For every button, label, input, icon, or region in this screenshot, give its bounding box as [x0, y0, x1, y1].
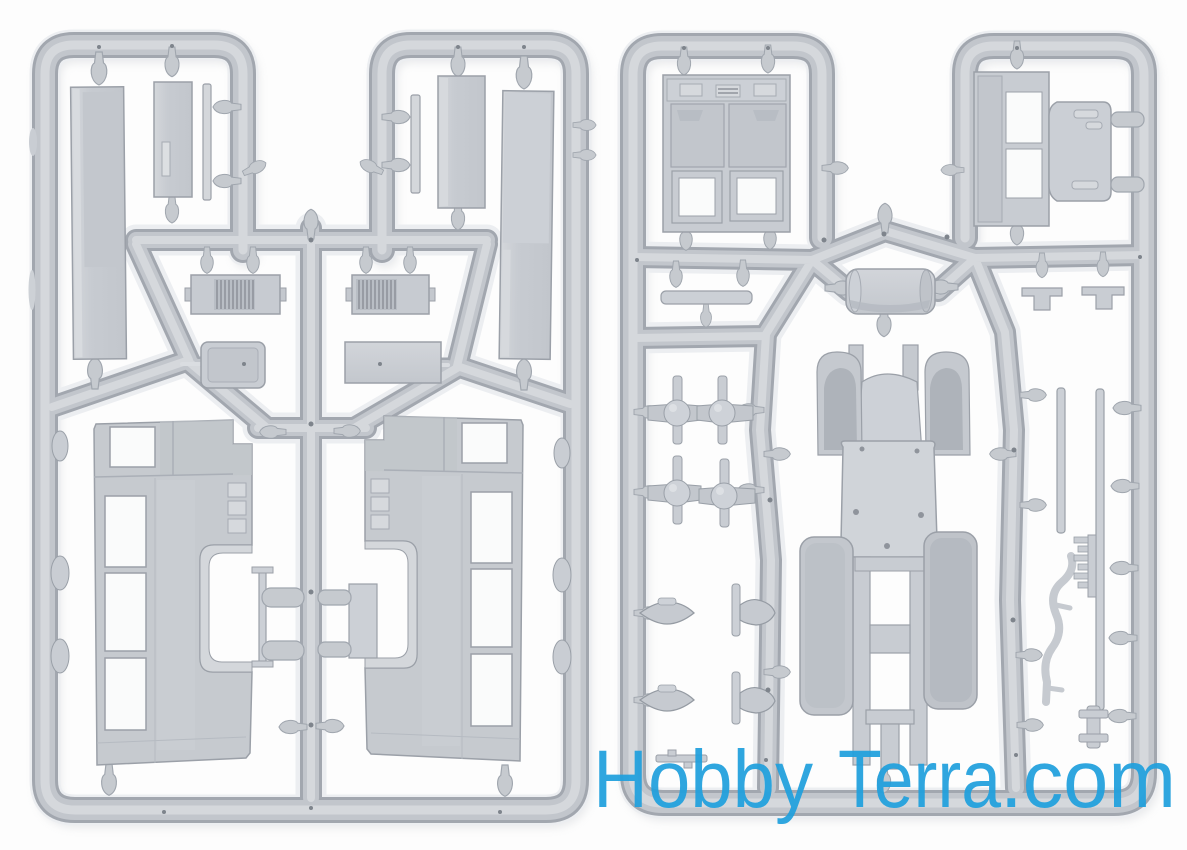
svg-text:.com: .com — [1000, 734, 1176, 825]
svg-text:Terra: Terra — [838, 734, 1001, 825]
svg-text:Hobby: Hobby — [593, 734, 813, 825]
